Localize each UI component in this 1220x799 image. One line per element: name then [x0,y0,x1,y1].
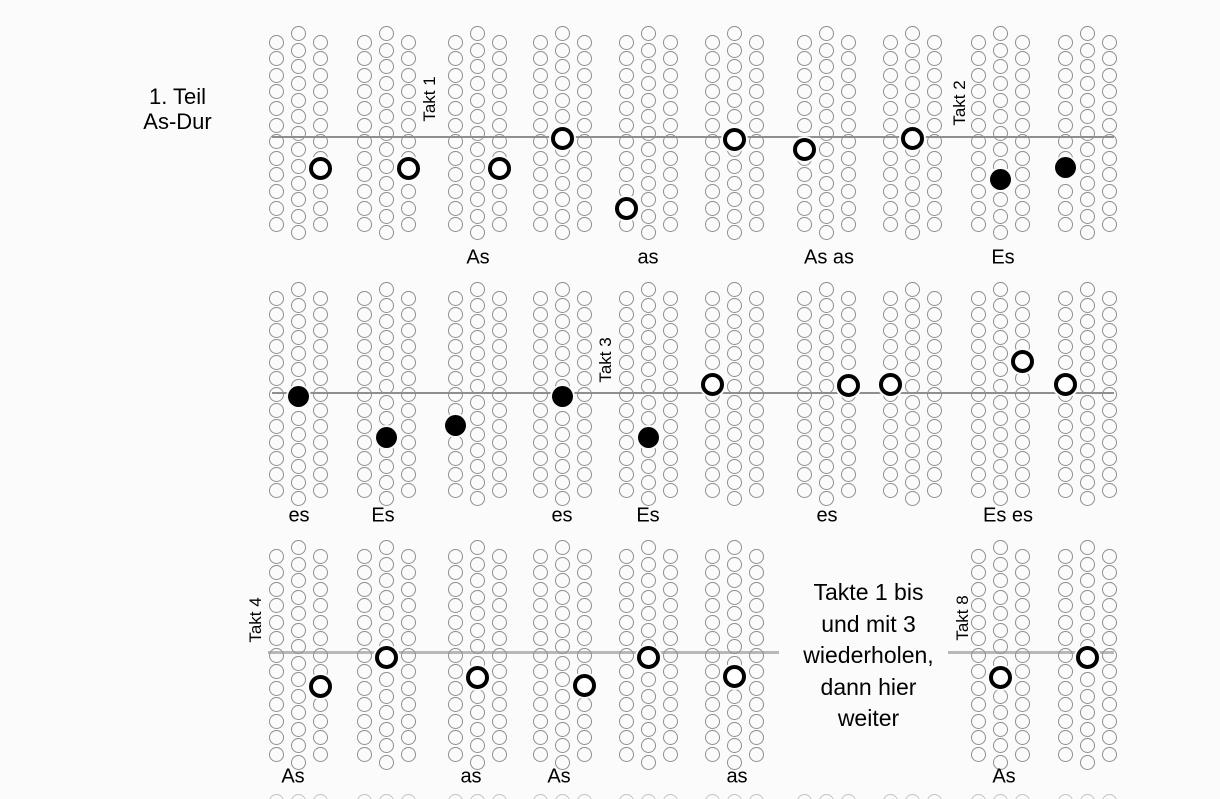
button-circle [619,435,634,450]
button-circle [470,176,485,191]
button-circle [577,648,592,663]
marked-button-open [793,138,816,161]
button-circle [905,475,920,490]
button-circle [492,664,507,679]
button-circle [379,314,394,329]
button-circle [401,681,416,696]
button-circle [313,355,328,370]
button-circle [841,419,856,434]
button-circle [993,459,1008,474]
button-circle [749,714,764,729]
button-circle [313,714,328,729]
button-circle [641,142,656,157]
button-circle [357,565,372,580]
button-circle [470,314,485,329]
button-circle [533,631,548,646]
button-circle [1015,615,1030,630]
marked-button-open [309,675,332,698]
button-circle [819,298,834,313]
button-circle [492,184,507,199]
button-circle [448,730,463,745]
button-circle [663,714,678,729]
button-circle [291,159,306,174]
button-circle [1015,371,1030,386]
button-circle [705,403,720,418]
button-circle [705,101,720,116]
button-circle [663,339,678,354]
button-circle [663,323,678,338]
button-circle [619,631,634,646]
button-circle [357,291,372,306]
marked-button-open [1054,373,1077,396]
button-circle [883,323,898,338]
button-circle [357,307,372,322]
button-circle [577,355,592,370]
note-label: Es es [983,505,1033,528]
button-circle [797,483,812,498]
button-circle [1080,192,1095,207]
button-circle [727,557,742,572]
button-circle [705,84,720,99]
button-circle [470,346,485,361]
button-circle [993,411,1008,426]
button-circle [927,339,942,354]
button-circle [291,26,306,41]
button-circle [1015,323,1030,338]
button-circle [291,540,306,555]
button-circle [619,467,634,482]
button-circle [641,26,656,41]
button-circle [1102,403,1117,418]
button-circle [971,84,986,99]
marked-button-open [573,674,596,697]
button-circle [1080,606,1095,621]
button-circle [749,134,764,149]
button-circle [291,639,306,654]
marked-button-open [375,646,398,669]
note-label: As as [804,247,854,270]
button-circle [927,101,942,116]
button-circle [448,101,463,116]
button-circle [705,565,720,580]
button-circle [797,371,812,386]
button-circle [971,307,986,322]
button-circle [705,134,720,149]
button-circle [641,672,656,687]
button-circle [619,681,634,696]
button-circle [357,549,372,564]
button-circle [619,565,634,580]
button-circle [797,101,812,116]
button-circle [993,557,1008,572]
button-circle [749,151,764,166]
button-circle [555,540,570,555]
button-circle [641,43,656,58]
button-circle [1102,51,1117,66]
button-circle [269,68,284,83]
button-circle [993,126,1008,141]
button-circle [470,491,485,506]
marked-button-open [901,127,924,150]
button-circle [1080,298,1095,313]
button-circle [401,631,416,646]
button-circle [1015,101,1030,116]
button-circle [577,291,592,306]
button-circle [819,93,834,108]
button-circle [727,722,742,737]
button-circle [291,722,306,737]
button-circle [905,76,920,91]
button-circle [971,101,986,116]
button-circle [749,167,764,182]
button-circle [993,26,1008,41]
button-circle [379,43,394,58]
button-circle [971,435,986,450]
button-circle [492,403,507,418]
button-circle [705,355,720,370]
button-circle [577,35,592,50]
button-circle [1102,323,1117,338]
button-circle [1015,151,1030,166]
button-circle [533,403,548,418]
button-circle [401,355,416,370]
button-circle [357,598,372,613]
button-circle [749,419,764,434]
button-circle [357,664,372,679]
button-circle [269,681,284,696]
button-circle [797,51,812,66]
button-circle [269,664,284,679]
marked-button-filled [376,427,397,448]
button-circle [470,26,485,41]
button-circle [533,84,548,99]
button-circle [993,93,1008,108]
button-circle [841,201,856,216]
button-circle [357,184,372,199]
button-circle [448,615,463,630]
button-circle [1058,403,1073,418]
button-circle [841,84,856,99]
button-circle [841,339,856,354]
repeat-instruction-line: dann hier [786,672,951,704]
button-circle [727,395,742,410]
button-circle [1080,379,1095,394]
button-circle [1015,134,1030,149]
button-circle [663,291,678,306]
button-circle [492,323,507,338]
button-circle [641,225,656,240]
button-circle [379,475,394,490]
button-circle [727,459,742,474]
button-circle [470,606,485,621]
button-circle [492,51,507,66]
button-circle [577,371,592,386]
button-circle [1080,159,1095,174]
button-circle [492,582,507,597]
button-circle [492,134,507,149]
button-circle [883,68,898,83]
button-circle [1015,84,1030,99]
button-circle [401,664,416,679]
button-circle [905,282,920,297]
button-circle [705,483,720,498]
button-circle [749,631,764,646]
button-circle [641,192,656,207]
button-circle [577,697,592,712]
button-circle [971,730,986,745]
button-circle [313,582,328,597]
button-circle [533,339,548,354]
button-circle [470,298,485,313]
button-circle [841,68,856,83]
button-circle [577,323,592,338]
button-circle [401,451,416,466]
cropped-button-circle [927,794,942,799]
button-circle [269,184,284,199]
button-circle [492,615,507,630]
button-circle [971,339,986,354]
button-circle [448,355,463,370]
button-circle [448,51,463,66]
button-circle [727,639,742,654]
button-circle [470,282,485,297]
button-circle [577,84,592,99]
button-circle [993,639,1008,654]
button-circle [797,419,812,434]
button-circle [727,705,742,720]
cropped-button-circle [663,794,678,799]
button-circle [705,435,720,450]
button-circle [470,192,485,207]
button-circle [470,689,485,704]
button-circle [971,151,986,166]
button-circle [641,573,656,588]
button-circle [357,68,372,83]
button-circle [533,664,548,679]
button-circle [533,101,548,116]
repeat-instruction-line: weiter [786,703,951,735]
button-circle [269,747,284,762]
button-circle [1080,26,1095,41]
button-circle [971,134,986,149]
takt-label: Takt 8 [953,595,973,640]
button-circle [269,35,284,50]
button-circle [883,307,898,322]
button-circle [533,355,548,370]
button-circle [470,362,485,377]
button-circle [905,443,920,458]
button-circle [971,467,986,482]
button-circle [1080,459,1095,474]
button-circle [291,738,306,753]
button-circle [905,43,920,58]
button-circle [470,427,485,442]
button-circle [797,118,812,133]
button-circle [357,403,372,418]
button-circle [357,615,372,630]
button-circle [470,379,485,394]
button-circle [401,84,416,99]
button-circle [749,217,764,232]
button-circle [448,217,463,232]
button-circle [993,689,1008,704]
button-circle [1102,134,1117,149]
button-circle [291,126,306,141]
button-circle [971,291,986,306]
button-circle [448,291,463,306]
button-circle [269,467,284,482]
button-circle [1080,705,1095,720]
button-circle [1102,565,1117,580]
button-circle [577,101,592,116]
button-circle [705,118,720,133]
button-circle [749,118,764,133]
button-circle [269,217,284,232]
button-circle [533,291,548,306]
cropped-button-circle [819,794,834,799]
button-circle [533,730,548,745]
button-circle [313,730,328,745]
button-circle [313,184,328,199]
button-circle [971,51,986,66]
cropped-button-circle [533,794,548,799]
button-circle [357,134,372,149]
button-circle [555,109,570,124]
button-circle [313,68,328,83]
button-circle [971,419,986,434]
button-circle [313,697,328,712]
button-circle [749,565,764,580]
button-circle [379,142,394,157]
button-circle [1080,314,1095,329]
button-circle [1058,201,1073,216]
button-circle [555,225,570,240]
button-circle [819,475,834,490]
button-circle [1080,225,1095,240]
button-circle [379,623,394,638]
button-circle [1058,648,1073,663]
cropped-button-circle [492,794,507,799]
button-circle [883,483,898,498]
button-circle [883,151,898,166]
button-circle [401,201,416,216]
button-circle [905,159,920,174]
button-circle [841,101,856,116]
button-circle [841,483,856,498]
button-circle [1102,598,1117,613]
button-circle [313,101,328,116]
button-circle [1058,118,1073,133]
button-circle [401,697,416,712]
button-circle [269,435,284,450]
button-circle [727,346,742,361]
button-circle [379,225,394,240]
button-circle [927,134,942,149]
marked-button-filled [1055,157,1076,178]
button-circle [291,176,306,191]
button-circle [819,159,834,174]
melody-line-row-3 [268,651,779,654]
button-circle [555,298,570,313]
button-circle [727,159,742,174]
button-circle [1058,217,1073,232]
button-circle [705,615,720,630]
cropped-button-circle [641,794,656,799]
marked-button-filled [288,386,309,407]
button-circle [1058,582,1073,597]
button-circle [619,371,634,386]
button-circle [533,217,548,232]
button-circle [749,467,764,482]
button-circle [492,483,507,498]
button-circle [1102,631,1117,646]
button-circle [401,549,416,564]
button-circle [819,427,834,442]
button-circle [727,282,742,297]
button-circle [492,565,507,580]
button-circle [663,598,678,613]
button-circle [313,451,328,466]
button-circle [448,307,463,322]
note-label: As [992,766,1015,789]
button-circle [727,314,742,329]
button-circle [993,443,1008,458]
button-circle [291,330,306,345]
button-circle [470,722,485,737]
button-circle [727,443,742,458]
button-circle [291,672,306,687]
button-circle [749,201,764,216]
button-circle [1080,282,1095,297]
button-circle [883,339,898,354]
button-circle [492,387,507,402]
button-circle [797,84,812,99]
button-circle [448,598,463,613]
button-circle [641,346,656,361]
marked-button-open [615,197,638,220]
button-circle [619,291,634,306]
button-circle [993,330,1008,345]
button-circle [883,101,898,116]
section-title-line1: 1. Teil [115,85,240,110]
button-circle [727,192,742,207]
button-circle [663,615,678,630]
button-circle [577,582,592,597]
button-circle [401,323,416,338]
button-circle [492,419,507,434]
button-circle [1080,362,1095,377]
note-label: Es [371,505,394,528]
button-circle [1058,68,1073,83]
button-circle [1015,118,1030,133]
button-circle [1058,291,1073,306]
button-circle [1102,582,1117,597]
button-circle [470,639,485,654]
button-circle [749,101,764,116]
button-circle [705,307,720,322]
button-circle [883,167,898,182]
button-circle [492,84,507,99]
button-circle [1058,681,1073,696]
button-circle [533,184,548,199]
button-circle [927,184,942,199]
button-circle [841,151,856,166]
button-circle [905,209,920,224]
button-circle [401,217,416,232]
button-circle [727,411,742,426]
button-circle [883,291,898,306]
button-circle [1015,291,1030,306]
